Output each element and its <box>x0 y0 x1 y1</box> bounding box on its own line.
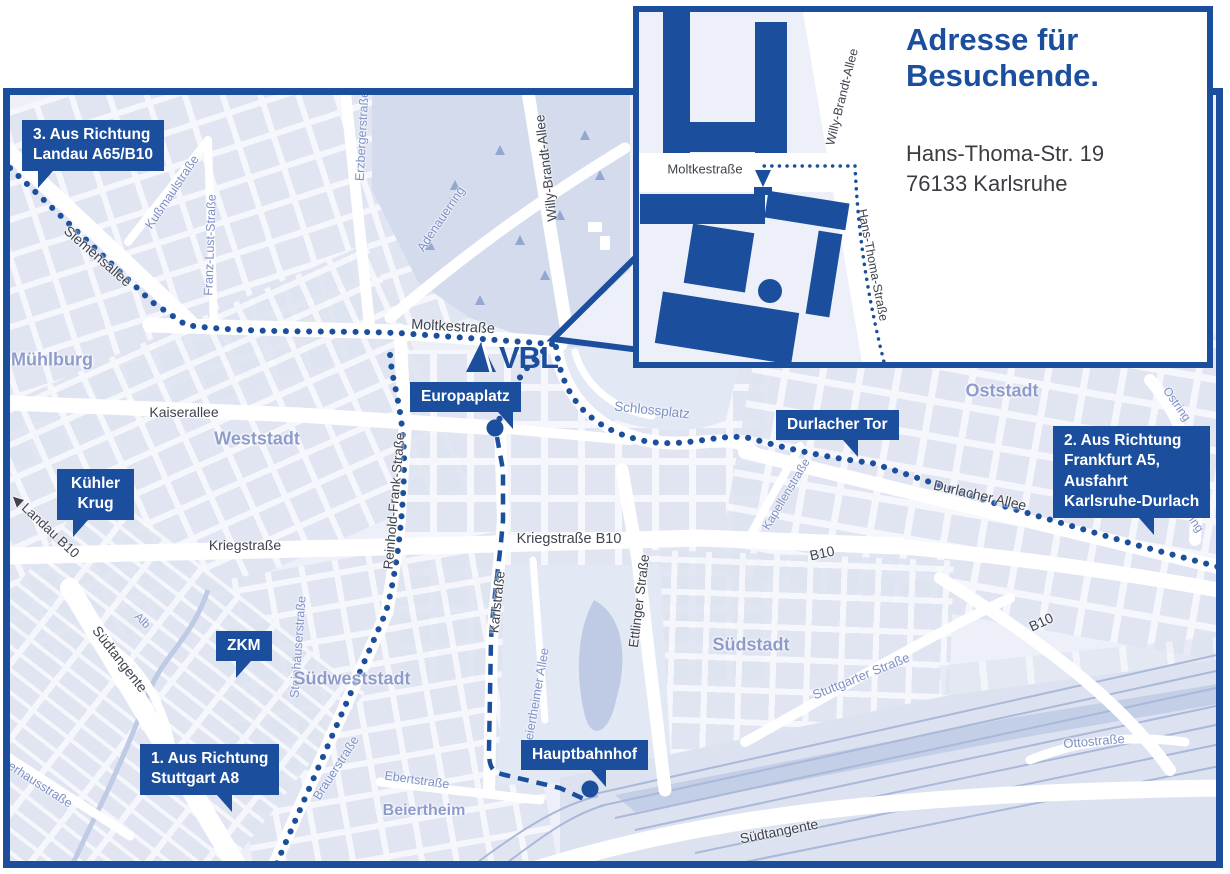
inset-panel: Adresse für Besuchende. Hans-Thoma-Str. … <box>633 6 1213 368</box>
district-label-muehlburg: Mühlburg <box>11 350 93 371</box>
vbl-directions-map: Siemensallee Moltkestraße Kaiserallee Kr… <box>0 0 1230 874</box>
inset-street-label-moltkestrasse: Moltkestraße <box>667 162 742 177</box>
inset-street-label-hans-thoma-strasse: Hans-Thoma-Straße <box>855 208 890 323</box>
street-label-kriegstrasse-west: Kriegstraße <box>209 537 281 553</box>
callout-durlacher-tor: Durlacher Tor <box>776 410 899 440</box>
inset-title: Adresse für Besuchende. <box>906 22 1099 94</box>
callout-europaplatz: Europaplatz <box>410 382 521 412</box>
street-label-kriegstrasse-b10: Kriegstraße B10 <box>517 531 622 547</box>
district-label-weststadt: Weststadt <box>214 429 300 450</box>
street-label-kaiserallee: Kaiserallee <box>149 404 218 420</box>
callout-zkm: ZKM <box>216 631 272 661</box>
inset-address: Hans-Thoma-Str. 19 76133 Karlsruhe <box>906 139 1104 199</box>
callout-route3: 3. Aus Richtung Landau A65/B10 <box>22 120 164 171</box>
callout-route2: 2. Aus Richtung Frankfurt A5, Ausfahrt K… <box>1053 426 1210 518</box>
inset-street-label-willy-brandt-allee: Willy-Brandt-Allee <box>823 47 861 147</box>
callout-kuehler-krug: Kühler Krug <box>57 469 134 520</box>
vbl-logo-triangle-icon <box>466 341 496 373</box>
district-label-beiertheim: Beiertheim <box>383 802 466 820</box>
district-label-oststadt: Oststadt <box>965 381 1038 402</box>
callout-route1: 1. Aus Richtung Stuttgart A8 <box>140 744 279 795</box>
callout-hauptbahnhof: Hauptbahnhof <box>521 740 648 770</box>
district-label-suedstadt: Südstadt <box>712 635 789 656</box>
district-label-suedweststadt: Südweststadt <box>293 669 410 690</box>
